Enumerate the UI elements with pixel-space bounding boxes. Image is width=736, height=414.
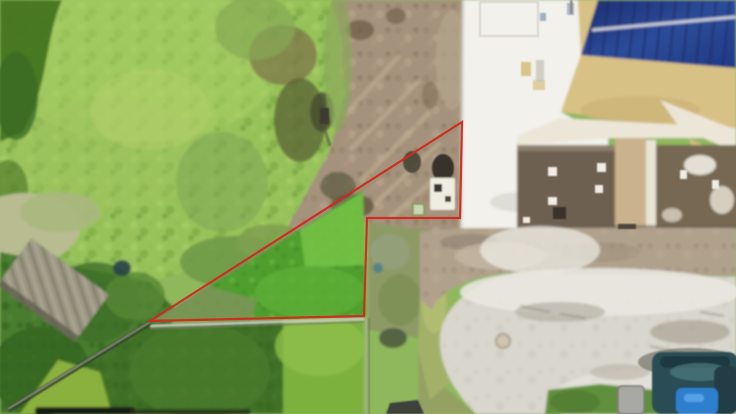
dry-grass2 — [20, 192, 100, 232]
aerial-photo-canvas — [0, 0, 736, 414]
gap-shadow — [618, 224, 636, 229]
roof-shadow-mark — [536, 60, 544, 82]
building-door — [553, 207, 566, 219]
curb-grass-shade — [550, 390, 600, 414]
scrub-patch2 — [176, 132, 268, 232]
roof-seam — [570, 0, 573, 14]
aerial-photo — [0, 0, 736, 414]
green-box — [413, 204, 424, 215]
roof-mark — [521, 62, 531, 76]
manhole-cover — [496, 334, 510, 348]
gray-bin — [618, 386, 644, 414]
photo-background — [0, 0, 736, 414]
roof-vent2 — [540, 13, 546, 21]
post — [320, 108, 329, 124]
dark-bin — [113, 260, 131, 276]
